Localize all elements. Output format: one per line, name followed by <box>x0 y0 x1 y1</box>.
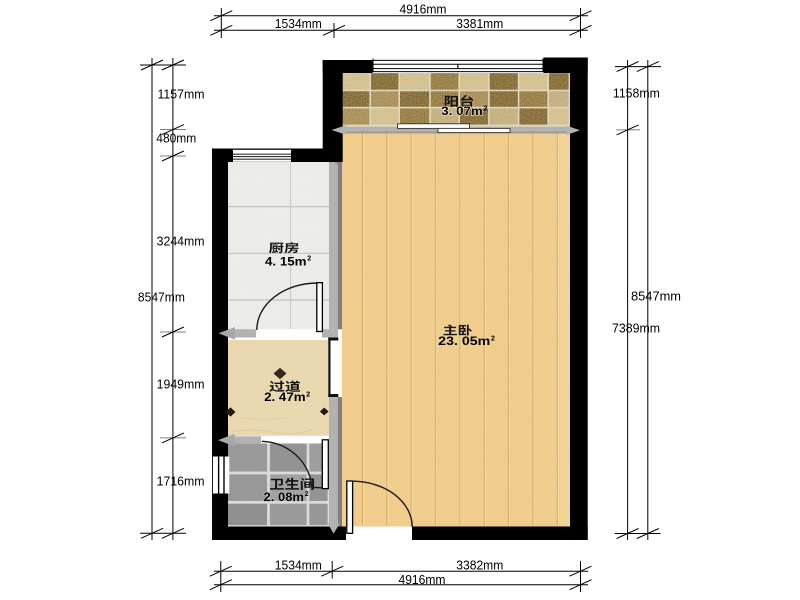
svg-text:2: 2 <box>307 256 311 263</box>
svg-text:7389mm: 7389mm <box>612 322 660 336</box>
svg-text:3244mm: 3244mm <box>157 235 205 249</box>
svg-text:8547mm: 8547mm <box>138 290 185 304</box>
svg-text:4916mm: 4916mm <box>399 573 446 587</box>
svg-text:480mm: 480mm <box>156 131 196 145</box>
svg-text:8547mm: 8547mm <box>631 289 681 303</box>
svg-text:2. 47m: 2. 47m <box>264 390 306 404</box>
svg-text:1949mm: 1949mm <box>157 378 205 392</box>
svg-text:1157mm: 1157mm <box>158 87 205 101</box>
svg-text:1534mm: 1534mm <box>275 17 322 31</box>
svg-text:4916mm: 4916mm <box>400 2 447 16</box>
svg-text:3. 07m: 3. 07m <box>441 106 483 118</box>
svg-text:1534mm: 1534mm <box>275 558 322 572</box>
svg-text:1716mm: 1716mm <box>157 475 205 489</box>
svg-text:3382mm: 3382mm <box>456 558 503 572</box>
svg-text:3381mm: 3381mm <box>456 17 503 31</box>
svg-text:2: 2 <box>491 335 495 342</box>
svg-text:2: 2 <box>484 106 488 113</box>
svg-text:2. 08m: 2. 08m <box>264 492 305 504</box>
svg-text:23. 05m: 23. 05m <box>438 334 490 348</box>
svg-text:1158mm: 1158mm <box>613 87 660 101</box>
svg-text:2: 2 <box>305 491 309 498</box>
svg-text:4. 15m: 4. 15m <box>265 254 307 268</box>
svg-text:2: 2 <box>306 391 310 398</box>
